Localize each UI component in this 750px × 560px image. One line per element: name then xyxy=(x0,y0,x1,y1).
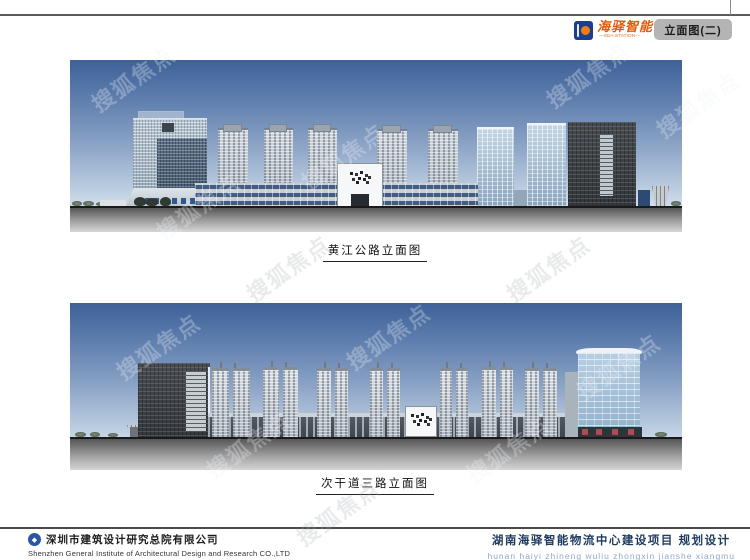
residential-tower-pair xyxy=(440,368,468,437)
building-dark-tower xyxy=(138,363,210,437)
residential-tower xyxy=(543,368,557,437)
gate-pavilion xyxy=(652,186,669,206)
residential-tower-pair xyxy=(212,368,250,437)
footer-company-block: ◆ 深圳市建筑设计研究总院有限公司 Shenzhen General Insti… xyxy=(28,532,290,558)
building-glass-tower xyxy=(477,127,514,208)
ground-strip xyxy=(70,437,682,470)
drawing-sheet: 海驿智能 —SEA-STATION— 立面图(二) xyxy=(0,0,750,560)
project-name-cn: 湖南海驿智能物流中心建设项目 规划设计 xyxy=(487,532,735,548)
residential-tower-pair xyxy=(482,367,513,437)
panel1-caption: 黄江公路立面图 xyxy=(0,241,750,262)
watermark: 搜狐焦点 xyxy=(500,227,597,308)
panel1-caption-text: 黄江公路立面图 xyxy=(323,242,428,262)
panel2-caption-text: 次干道三路立面图 xyxy=(316,475,434,495)
residential-tower xyxy=(387,368,400,437)
project-name-pinyin: hunan haiyi zhineng wuliu zhongxin jians… xyxy=(487,551,735,560)
portal-logo-marks xyxy=(350,172,353,175)
footer-rule xyxy=(0,527,750,529)
building-dark-tower xyxy=(568,122,636,208)
panel2-caption: 次干道三路立面图 xyxy=(0,474,750,495)
building-glass-tower xyxy=(578,353,640,437)
blue-sign-box xyxy=(638,190,650,206)
tower-light-strip xyxy=(600,134,613,196)
residential-tower-pair xyxy=(317,368,348,437)
residential-tower xyxy=(482,367,496,437)
residential-tower xyxy=(283,367,299,437)
tower-light-strip xyxy=(186,371,206,431)
red-base-elements xyxy=(582,429,588,435)
residential-tower xyxy=(500,367,514,437)
brand-dot-icon xyxy=(581,26,590,35)
ground-strip xyxy=(70,206,682,232)
residential-tower-pair xyxy=(370,368,400,437)
residential-tower-pair xyxy=(263,367,298,437)
entrance-portal-sign xyxy=(337,163,383,208)
sign-logo-marks xyxy=(411,414,414,417)
company-name-cn: 深圳市建筑设计研究总院有限公司 xyxy=(46,532,219,547)
brand-tagline: —SEA-STATION— xyxy=(597,34,642,39)
header-rule xyxy=(0,14,750,16)
brand-text: 海驿智能 —SEA-STATION— xyxy=(597,20,653,40)
tree xyxy=(134,197,146,206)
residential-tower xyxy=(212,368,229,437)
brand-mark-icon xyxy=(574,21,593,40)
brand-name: 海驿智能 xyxy=(597,20,653,34)
residential-tower xyxy=(263,367,279,437)
building-glass-tower xyxy=(527,123,566,208)
rooftop-box xyxy=(162,123,174,132)
footer-project-block: 湖南海驿智能物流中心建设项目 规划设计 hunan haiyi zhineng … xyxy=(487,532,735,560)
brand-logo: 海驿智能 —SEA-STATION— xyxy=(574,18,653,42)
header-corner-tick xyxy=(730,0,731,15)
tree xyxy=(146,198,158,206)
elevation-panel-1 xyxy=(70,60,682,232)
brand-sign-board xyxy=(405,406,437,437)
sheet-title: 立面图(二) xyxy=(654,19,732,40)
company-logo-icon: ◆ xyxy=(28,533,41,546)
residential-tower xyxy=(317,368,331,437)
residential-tower xyxy=(233,368,250,437)
elevation-panel-2 xyxy=(70,303,682,470)
company-name-en: Shenzhen General Institute of Architectu… xyxy=(28,549,290,558)
tree xyxy=(160,197,171,206)
residential-tower xyxy=(335,368,349,437)
watermark: 搜狐焦点 xyxy=(240,227,337,308)
residential-tower xyxy=(525,368,539,437)
residential-tower xyxy=(370,368,383,437)
residential-tower xyxy=(456,368,468,437)
residential-tower xyxy=(440,368,452,437)
residential-tower-pair xyxy=(525,368,557,437)
